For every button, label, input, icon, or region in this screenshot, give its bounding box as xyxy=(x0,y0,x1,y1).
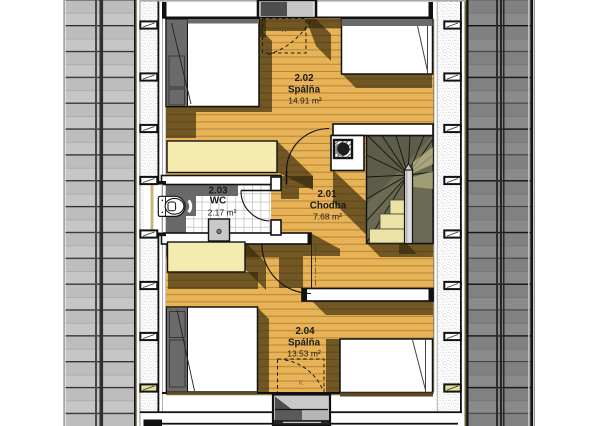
svg-text:13.53 m²: 13.53 m² xyxy=(287,349,321,359)
svg-text:7.68 m²: 7.68 m² xyxy=(313,212,342,222)
svg-text:K: K xyxy=(298,378,303,387)
svg-text:Spálňa: Spálňa xyxy=(288,85,321,96)
svg-text:WC: WC xyxy=(210,196,226,207)
svg-text:Spálňa: Spálňa xyxy=(288,338,321,349)
svg-text:K: K xyxy=(281,25,286,34)
svg-text:2.17 m²: 2.17 m² xyxy=(208,208,237,218)
svg-text:2.02: 2.02 xyxy=(294,73,314,84)
svg-text:14.91 m²: 14.91 m² xyxy=(288,96,322,106)
svg-text:Chodba: Chodba xyxy=(310,201,347,212)
svg-text:2.04: 2.04 xyxy=(295,326,315,337)
svg-text:2.01: 2.01 xyxy=(317,189,337,200)
